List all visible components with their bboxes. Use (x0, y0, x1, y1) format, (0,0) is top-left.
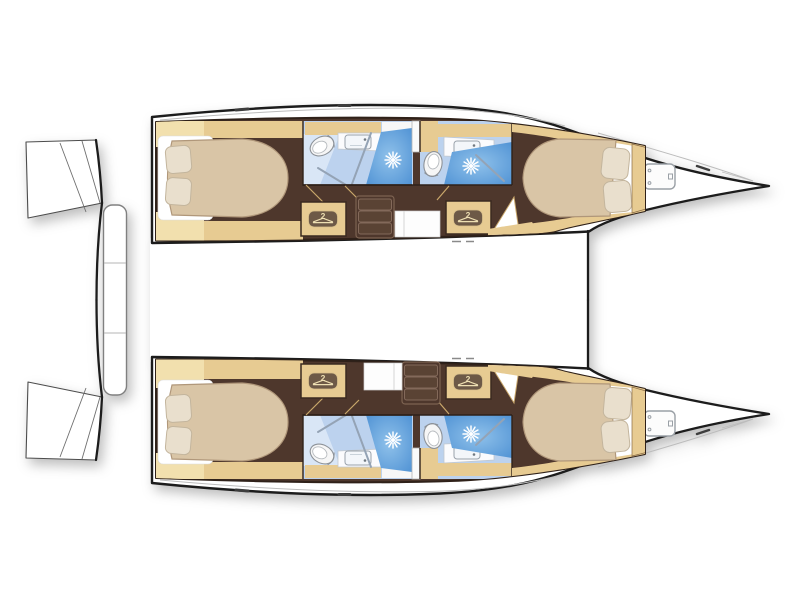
catamaran (26, 105, 769, 495)
bridge-deck (150, 228, 587, 372)
steps-lower-hull (402, 362, 440, 404)
steps-upper-hull (356, 196, 394, 238)
landing-floor-upper (395, 211, 440, 237)
catamaran-floorplan-page: 2 (0, 0, 800, 600)
floorplan-canvas: 2 (0, 0, 800, 600)
aft-boarding-platform (104, 205, 127, 395)
landing-floor-lower (364, 363, 402, 390)
